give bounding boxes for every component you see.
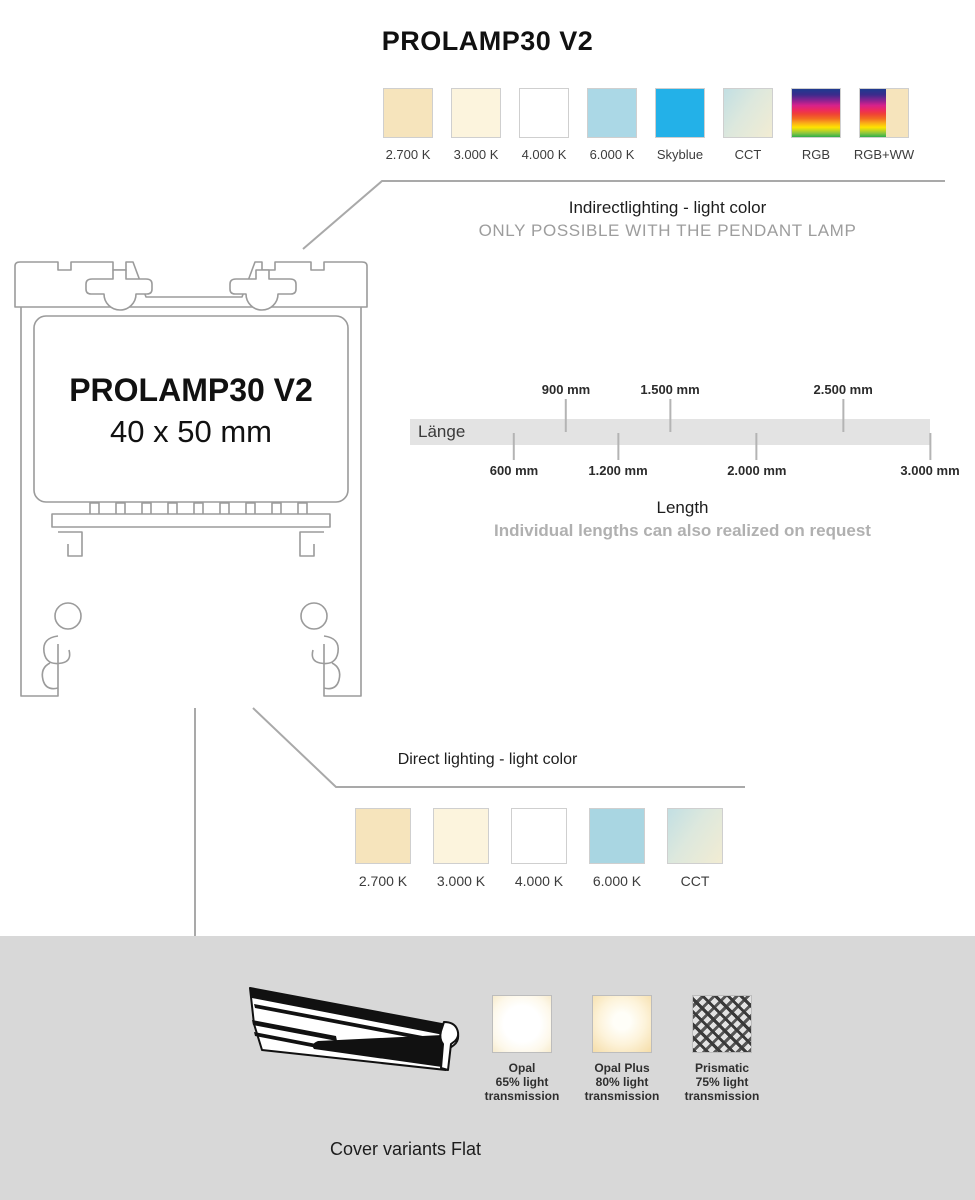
length-tick-600: 600 mm <box>490 433 538 478</box>
profile-text-block: PROLAMP30 V2 40 x 50 mm <box>12 372 370 450</box>
rgb-half <box>860 89 886 137</box>
swatch-label: RGB+WW <box>854 147 914 162</box>
swatch-color-skyblue <box>655 88 705 138</box>
indirect-heading: Indirectlighting - light color <box>400 198 935 218</box>
cover-label: Opal Plus 80% light transmission <box>585 1061 660 1103</box>
swatch-color-cct <box>723 88 773 138</box>
length-heading-block: Length Individual lengths can also reali… <box>410 498 955 541</box>
cover-opal-plus: Opal Plus 80% light transmission <box>572 995 672 1103</box>
cover-label: Opal 65% light transmission <box>485 1061 560 1103</box>
swatch-label: 6.000 K <box>593 873 641 889</box>
swatch-color-6000k <box>589 808 645 864</box>
warmwhite-half <box>886 89 908 137</box>
swatch-label: 3.000 K <box>454 147 499 162</box>
swatch-color-2700k <box>383 88 433 138</box>
swatch-cct: CCT <box>714 88 782 162</box>
profile-teeth <box>90 503 307 514</box>
swatch-label: 4.000 K <box>515 873 563 889</box>
tick-line <box>669 399 671 432</box>
swatch-color-rgbww <box>859 88 909 138</box>
length-heading: Length <box>410 498 955 518</box>
swatch-cct: CCT <box>656 808 734 889</box>
opal-swatch <box>492 995 552 1053</box>
profile-step-right <box>300 532 324 556</box>
swatch-6000k: 6.000 K <box>578 88 646 162</box>
swatch-label: 6.000 K <box>590 147 635 162</box>
product-sheet: PROLAMP30 V2 2.700 K 3.000 K 4.000 K 6.0… <box>0 0 975 1200</box>
swatch-label: 4.000 K <box>522 147 567 162</box>
direct-connector-line <box>253 708 745 787</box>
tick-label: 900 mm <box>542 382 590 397</box>
swatch-label: CCT <box>735 147 762 162</box>
tick-label: 3.000 mm <box>900 463 959 478</box>
cover-profile-drawing <box>248 984 468 1076</box>
swatch-rgb: RGB <box>782 88 850 162</box>
length-tick-2500: 2.500 mm <box>814 382 873 432</box>
tick-line <box>756 433 758 460</box>
profile-clip-right <box>301 603 340 689</box>
profile-cross-section-svg <box>12 256 370 708</box>
swatch-2700k: 2.700 K <box>374 88 442 162</box>
direct-swatch-row: 2.700 K 3.000 K 4.000 K 6.000 K CCT <box>344 808 734 889</box>
tick-line <box>842 399 844 432</box>
length-tick-1500: 1.500 mm <box>640 382 699 432</box>
cover-prismatic: Prismatic 75% light transmission <box>672 995 772 1103</box>
indirect-subheading: ONLY POSSIBLE WITH THE PENDANT LAMP <box>400 221 935 241</box>
length-tick-1200: 1.200 mm <box>588 433 647 478</box>
tick-line <box>929 433 931 460</box>
swatch-label: 3.000 K <box>437 873 485 889</box>
prismatic-swatch <box>692 995 752 1053</box>
swatch-rgbww: RGB+WW <box>850 88 918 162</box>
swatch-label: 2.700 K <box>359 873 407 889</box>
swatch-color-3000k <box>433 808 489 864</box>
swatch-3000k: 3.000 K <box>442 88 510 162</box>
cover-label: Prismatic 75% light transmission <box>685 1061 760 1103</box>
tick-label: 2.500 mm <box>814 382 873 397</box>
profile-dimensions: 40 x 50 mm <box>12 414 370 450</box>
indirect-swatch-row: 2.700 K 3.000 K 4.000 K 6.000 K Skyblue … <box>374 88 918 162</box>
swatch-color-6000k <box>587 88 637 138</box>
tick-line <box>513 433 515 460</box>
profile-step-left <box>58 532 82 556</box>
swatch-color-2700k <box>355 808 411 864</box>
tick-label: 2.000 mm <box>727 463 786 478</box>
profile-drawing: PROLAMP30 V2 40 x 50 mm <box>12 256 370 708</box>
cover-heading: Cover variants Flat <box>330 1139 481 1160</box>
swatch-label: RGB <box>802 147 830 162</box>
swatch-skyblue: Skyblue <box>646 88 714 162</box>
opal-plus-swatch <box>592 995 652 1053</box>
profile-clip-left <box>42 603 81 689</box>
cover-swatch-row: Opal 65% light transmission Opal Plus 80… <box>472 995 772 1103</box>
tick-label: 600 mm <box>490 463 538 478</box>
swatch-6000k: 6.000 K <box>578 808 656 889</box>
tick-line <box>617 433 619 460</box>
length-tick-900: 900 mm <box>542 382 590 432</box>
swatch-label: 2.700 K <box>386 147 431 162</box>
profile-top-rail <box>15 262 367 307</box>
swatch-3000k: 3.000 K <box>422 808 500 889</box>
swatch-label: Skyblue <box>657 147 703 162</box>
indirect-heading-block: Indirectlighting - light color ONLY POSS… <box>400 198 935 241</box>
swatch-color-4000k <box>519 88 569 138</box>
swatch-label: CCT <box>681 873 710 889</box>
length-scale: Länge 900 mm 1.500 mm 2.500 mm 600 mm 1.… <box>410 382 930 478</box>
swatch-4000k: 4.000 K <box>510 88 578 162</box>
page-title: PROLAMP30 V2 <box>0 26 975 57</box>
swatch-color-rgb <box>791 88 841 138</box>
length-tick-3000: 3.000 mm <box>900 433 959 478</box>
tick-line <box>565 399 567 432</box>
tick-label: 1.200 mm <box>588 463 647 478</box>
swatch-color-4000k <box>511 808 567 864</box>
direct-heading: Direct lighting - light color <box>310 751 665 769</box>
profile-name: PROLAMP30 V2 <box>12 372 370 409</box>
swatch-4000k: 4.000 K <box>500 808 578 889</box>
swatch-2700k: 2.700 K <box>344 808 422 889</box>
tick-label: 1.500 mm <box>640 382 699 397</box>
profile-led-plate <box>52 514 330 527</box>
length-tick-2000: 2.000 mm <box>727 433 786 478</box>
length-subheading: Individual lengths can also realized on … <box>410 521 955 541</box>
swatch-color-3000k <box>451 88 501 138</box>
swatch-color-cct <box>667 808 723 864</box>
cover-opal: Opal 65% light transmission <box>472 995 572 1103</box>
cover-end-cap <box>440 1022 458 1070</box>
